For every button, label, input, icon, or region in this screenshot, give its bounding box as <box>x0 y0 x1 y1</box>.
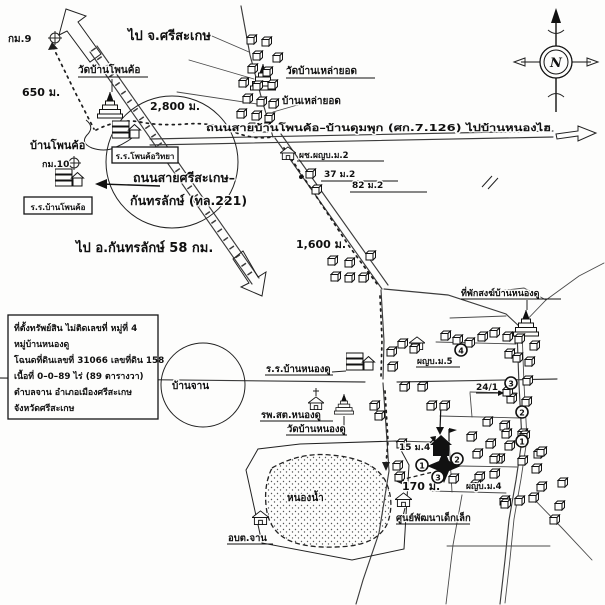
label-ban-chan: บ้านจาน <box>172 380 209 392</box>
label-dist-650: 650 ม. <box>22 86 60 99</box>
house-icon <box>490 454 500 463</box>
label-asst-headman-m2: ผช.ผญบ.ม.2 <box>299 151 349 161</box>
house-icon <box>410 344 420 353</box>
label-dist-1600: 1,600 ม. <box>296 238 346 251</box>
school-icon-ban-phonkho <box>55 169 84 186</box>
info-line-6: จังหวัดศรีสะเกษ <box>14 403 75 414</box>
house-icon <box>268 80 278 89</box>
house-icon <box>523 376 533 385</box>
home-icon-sao-chan <box>252 511 269 525</box>
marker-road-1: 1 <box>519 438 525 447</box>
house-icon <box>465 338 475 347</box>
house-icon <box>427 401 437 410</box>
house-icon <box>502 429 512 438</box>
house-icon <box>550 515 560 524</box>
label-house-37: 37 ม.2 <box>324 170 355 180</box>
house-icon <box>503 332 513 341</box>
temple-icon-monk-residence <box>514 310 539 336</box>
marker-road-2: 2 <box>519 409 525 418</box>
house-icon <box>237 109 247 118</box>
house-icon <box>388 362 398 371</box>
label-dist-2800: 2,800 ม. <box>150 100 200 113</box>
pond-area <box>266 455 391 548</box>
home-icon-child-center <box>395 493 412 507</box>
house-icon <box>530 341 540 350</box>
house-icon <box>555 501 565 510</box>
house-icon <box>243 94 253 103</box>
label-ban-laoyot: บ้านเหล่ายอด <box>282 95 341 107</box>
house-icon <box>306 169 316 178</box>
house-icon <box>253 51 263 60</box>
marker-house-1: 1 <box>419 462 425 471</box>
house-icon <box>248 64 258 73</box>
house-icon <box>393 461 403 470</box>
label-house-15-m4: 15 ม.4 <box>399 443 430 453</box>
marker-road-4: 4 <box>458 347 464 356</box>
house-icon <box>453 335 463 344</box>
house-icon <box>252 111 262 120</box>
label-wat-nongdu: วัดบ้านหนองดู <box>287 423 346 436</box>
compass-north-letter: N <box>549 56 563 71</box>
compass-rose: N <box>514 8 598 112</box>
house-icon <box>440 401 450 410</box>
road-lane <box>470 393 472 417</box>
map-page: ไป จ.ศรีสะเกษ กม.9 650 ม. วัดบ้านโพนค้อ … <box>0 0 605 605</box>
house-icon <box>257 97 267 106</box>
road-south-main <box>356 290 389 604</box>
label-road221-line2: กันทรลักษ์ (ทล.221) <box>130 193 247 208</box>
house-icon <box>515 496 525 505</box>
marker-house-3: 3 <box>435 474 441 483</box>
house-icon <box>515 334 525 343</box>
label-child-dev-center: ศูนย์พัฒนาเด็กเล็ก <box>396 511 471 525</box>
house-icon <box>312 185 322 194</box>
map-canvas: ไป จ.ศรีสะเกษ กม.9 650 ม. วัดบ้านโพนค้อ … <box>0 0 605 605</box>
label-school-ban-phonkho: ร.ร.บ้านโพนค้อ <box>31 202 86 212</box>
house-icon <box>537 482 547 491</box>
label-pond: หนองน้ำ <box>287 490 324 504</box>
temple-icon-wat-phonkho <box>98 92 123 118</box>
house-icon <box>398 339 408 348</box>
house-icon <box>501 499 511 508</box>
school-icon-phonkho-wittaya <box>112 121 141 138</box>
house-icon <box>375 411 385 420</box>
label-road221-line1: ถนนสายศรีสะเกษ– <box>133 170 235 185</box>
house-icon <box>247 35 257 44</box>
label-km10: กม.10 <box>42 160 69 170</box>
house-icon <box>532 464 542 473</box>
house-icon <box>262 37 272 46</box>
house-icon <box>366 251 376 260</box>
house-icon <box>483 417 493 426</box>
label-km9: กม.9 <box>8 34 31 45</box>
house-icon <box>529 493 539 502</box>
label-headman-m5: ผญบ.ม.5 <box>417 357 453 367</box>
house-icon <box>513 353 523 362</box>
house-icon <box>418 382 428 391</box>
label-wat-phonkho: วัดบ้านโพนค้อ <box>78 63 140 76</box>
house-icon <box>345 273 355 282</box>
house-icon <box>473 449 483 458</box>
road-lane <box>436 342 516 344</box>
house-icon <box>345 258 355 267</box>
road-lane <box>440 416 521 418</box>
label-house-24-1: 24/1 <box>476 383 498 393</box>
house-icon <box>269 99 279 108</box>
arrow-to-nonghai-icon <box>556 126 596 141</box>
road-lane <box>450 316 506 318</box>
property-info-box: ที่ตั้งทรัพย์สิน ไม่ติดเลขที่ หมู่ที่ 4 … <box>8 315 164 419</box>
house-icon <box>239 78 249 87</box>
label-to-kantharalak: ไป อ.กันทรลักษ์ 58 กม. <box>74 239 213 256</box>
road-lane <box>205 33 249 52</box>
house-icon <box>478 332 488 341</box>
label-ban-phonkho: บ้านโพนค้อ <box>30 138 85 152</box>
house-icon <box>449 474 459 483</box>
house-icon <box>400 382 410 391</box>
house-icon <box>490 469 500 478</box>
label-school-phonkho-wittaya: ร.ร.โพนค้อวิทยา <box>116 151 175 161</box>
house-icon <box>253 81 263 90</box>
road-lane <box>460 466 517 467</box>
house-icon <box>328 256 338 265</box>
point-marker-icon <box>299 175 303 179</box>
label-health-station: รพ.สต.หนองดู <box>261 410 321 422</box>
label-school-nongdu: ร.ร.บ้านหนองดู <box>266 363 331 376</box>
house-icon <box>359 273 369 282</box>
label-wat-laoyot: วัดบ้านเหล่ายอด <box>286 65 357 77</box>
health-station-icon <box>308 388 324 410</box>
house-icon <box>558 478 568 487</box>
house-icon <box>518 456 528 465</box>
info-line-2: หมู่บ้านหนองดู <box>14 339 70 350</box>
label-headman-m4: ผญบ.ม.4 <box>466 482 502 492</box>
house-icon <box>265 113 275 122</box>
label-monk-residence: ที่พักสงฆ์บ้านหนองดู <box>461 286 540 299</box>
house-icon <box>263 67 273 76</box>
temple-icon-wat-nongdu <box>334 394 353 414</box>
label-house-82: 82 ม.2 <box>352 181 383 191</box>
house-icon <box>331 272 341 281</box>
road-lane <box>189 60 254 79</box>
marker-house-2: 2 <box>454 456 460 465</box>
road-break-mark <box>482 176 498 189</box>
house-icon <box>505 441 515 450</box>
info-line-5: ตำบลจาน อำเภอเมืองศรีสะเกษ <box>14 386 132 398</box>
house-icon <box>441 331 451 340</box>
house-icon <box>537 447 547 456</box>
house-icon <box>525 357 535 366</box>
house-icon <box>522 397 532 406</box>
house-icon <box>387 347 397 356</box>
label-to-sisaket: ไป จ.ศรีสะเกษ <box>126 27 211 44</box>
house-icon <box>486 439 496 448</box>
label-sao-chan: อบต.จาน <box>228 533 267 544</box>
house-icon <box>273 53 283 62</box>
marker-road-3: 3 <box>508 380 514 389</box>
road-right-village <box>500 331 522 604</box>
house-icon <box>370 401 380 410</box>
compass-north-arrow-icon <box>551 8 561 23</box>
arrow-to-sisaket-icon <box>59 9 101 62</box>
house-icon <box>467 432 477 441</box>
school-icon-ban-nongdu <box>346 353 375 370</box>
house-icon <box>490 328 500 337</box>
road-lane <box>446 495 462 604</box>
label-road-sorkor: ถนนสายบ้านโพนค้อ–บ้านดุมพุก (ศก.7.126) ไ… <box>206 122 551 134</box>
